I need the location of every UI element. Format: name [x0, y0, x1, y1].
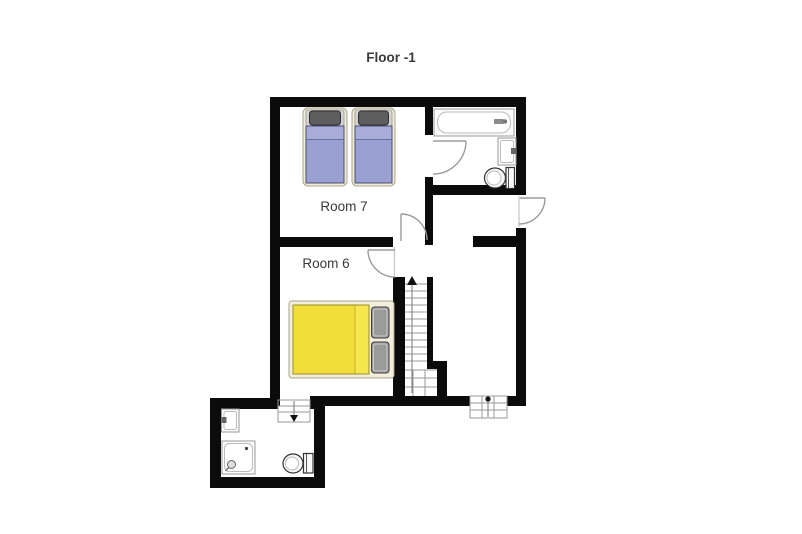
wall-bottom-b — [310, 396, 470, 406]
wall-bath2-bottom — [210, 477, 325, 488]
room-7-beds — [303, 108, 395, 186]
wall-corridor-t — [473, 236, 526, 247]
wall-stair-jog-h — [427, 361, 447, 369]
bathroom-lower-left — [222, 409, 314, 474]
shower-drain — [245, 447, 248, 450]
room-labels: Room 7 Room 6 — [302, 199, 367, 271]
stair-down-arrow — [290, 415, 298, 422]
wall-bath2-top-b — [310, 398, 325, 409]
single-bed-2 — [352, 108, 395, 186]
steps-marker-dot — [485, 396, 490, 401]
stair-up-arrow — [407, 276, 417, 285]
wall-right-upper — [516, 97, 526, 195]
wall-room-divider — [272, 237, 393, 247]
floorplan-canvas: Floor -1 — [0, 0, 802, 534]
room-7-door — [401, 214, 427, 241]
title-group: Floor -1 — [366, 50, 416, 65]
exterior-steps — [470, 396, 507, 418]
double-bed-pillow-2 — [372, 342, 390, 373]
hall-exterior-door — [519, 196, 545, 227]
wall-bath2-top-a — [210, 398, 278, 409]
sink-lower — [222, 409, 240, 432]
wall-stair-left — [393, 277, 405, 396]
wall-bath2-right — [314, 398, 325, 488]
wall-right-lower — [516, 228, 526, 406]
wall-bath2-left — [210, 398, 221, 488]
wall-left — [270, 97, 280, 406]
room-6-door — [368, 247, 395, 277]
sink-lower-faucet — [222, 417, 227, 423]
bathroom-upper-door — [433, 141, 466, 174]
bathtub-faucet — [494, 119, 504, 124]
shower — [222, 441, 255, 474]
bathtub — [434, 109, 514, 136]
floor-title: Floor -1 — [366, 50, 416, 65]
toilet-lower — [283, 454, 313, 474]
room-7-label: Room 7 — [320, 199, 367, 214]
sink-upper-faucet — [511, 148, 516, 154]
sink-upper — [498, 138, 516, 165]
toilet-upper — [485, 168, 515, 189]
floorplan-drawing: Floor -1 — [0, 0, 802, 534]
wall-bath-divider-upper — [425, 107, 433, 135]
double-bed-pillow-1 — [372, 307, 390, 338]
bed1-pillow — [310, 111, 341, 125]
bed2-pillow — [359, 111, 389, 125]
wall-stair-right — [427, 277, 433, 365]
wall-top — [270, 97, 526, 107]
wall-bottom-c — [507, 396, 526, 406]
wall-stair-jog-v — [437, 369, 447, 396]
room-6-label: Room 6 — [302, 256, 349, 271]
single-bed-1 — [303, 108, 347, 186]
room-6-bed — [289, 301, 394, 378]
bathroom-steps — [278, 400, 310, 422]
bathroom-upper-right — [434, 109, 516, 189]
